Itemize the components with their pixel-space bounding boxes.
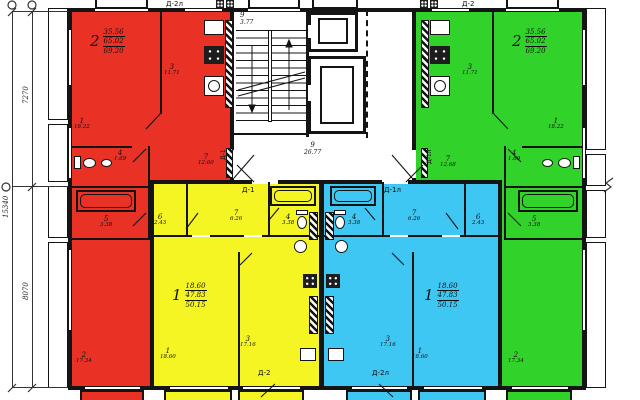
usable-area: 47.83 <box>437 290 459 300</box>
room-label: 317.16 <box>240 336 256 349</box>
shaft-dashed-wall <box>366 10 368 138</box>
rooms-count: 2 <box>512 34 522 49</box>
vent-shaft <box>421 20 429 108</box>
door-label-entry-left: Д-1 <box>242 186 254 194</box>
elevator-door-large <box>308 85 311 101</box>
balcony-left <box>48 186 68 238</box>
kitchen-box <box>300 348 316 361</box>
room-label: 41.69 <box>114 150 126 163</box>
fridge-icon <box>430 20 450 35</box>
room-label: 43.38 <box>282 214 294 227</box>
vent-shaft <box>309 212 318 240</box>
room-label: 76.26 <box>230 210 242 223</box>
room-label: 53.38 <box>528 216 540 229</box>
window-sill <box>346 390 412 400</box>
green-wall-h3 <box>504 238 586 240</box>
green-wall-h1 <box>522 146 586 148</box>
total-area: 69.20 <box>525 47 547 55</box>
room-label: 43.38 <box>348 214 360 227</box>
hall-label: 9 26.77 <box>304 142 321 156</box>
area-stack: 18.60 47.83 50.15 <box>185 282 207 309</box>
stove-icon <box>326 274 340 288</box>
toilet-tank <box>573 156 580 169</box>
room-label: 317.16 <box>380 336 396 349</box>
room-label: 53.38 <box>100 216 112 229</box>
living-area: 35.56 <box>525 28 547 36</box>
area-stack: 18.60 47.83 50.15 <box>437 282 459 309</box>
kitchen-sink-bowl <box>208 80 220 92</box>
toilet-icon <box>335 216 345 229</box>
window-sill <box>506 390 572 400</box>
door-gap-yellow-entry <box>252 180 278 184</box>
dim-label-8070: 8070 <box>22 282 30 300</box>
window-sill <box>164 390 232 400</box>
total-area: 69.20 <box>103 47 125 55</box>
elevator-car-small <box>318 18 348 44</box>
red-wall-h1 <box>68 146 132 148</box>
window-sill <box>418 390 486 400</box>
parapet-box <box>95 0 148 9</box>
dim-line-segment <box>32 12 33 388</box>
room-label: 62.43 <box>154 214 166 227</box>
bathtub-icon <box>518 190 578 212</box>
vent-box <box>420 0 428 8</box>
blue-door-gap2 <box>442 235 460 237</box>
door-label-green-entry: Д-1л <box>426 149 433 164</box>
room-label: 41.69 <box>508 150 520 163</box>
blue-door-gap1 <box>390 235 408 237</box>
vent-shaft <box>226 148 233 178</box>
door-label-entry-right: Д-1л <box>384 186 401 194</box>
stair-stringer <box>268 30 272 122</box>
window <box>68 128 72 178</box>
vent-shaft <box>225 20 233 108</box>
total-area: 50.15 <box>185 301 207 309</box>
window <box>185 8 222 12</box>
toilet-tank <box>74 156 81 169</box>
window-sill <box>238 390 304 400</box>
room-label: 217.34 <box>508 352 524 365</box>
red-kitchen-wall <box>160 8 162 114</box>
balcony-left <box>48 8 68 120</box>
living-area: 35.56 <box>103 28 125 36</box>
room-label: 118.22 <box>74 118 90 131</box>
room-label: 76.26 <box>408 210 420 223</box>
balcony-right <box>586 154 606 186</box>
usable-area: 47.83 <box>185 290 207 300</box>
toilet-tank <box>296 210 308 215</box>
green-wall-v1 <box>504 146 506 240</box>
yellow-wall-h1 <box>152 235 320 237</box>
area-stack: 35.56 65.02 69.20 <box>525 28 547 55</box>
yellow-rooms-wall <box>238 252 240 386</box>
room-label: 217.34 <box>76 352 92 365</box>
room-label: 311.71 <box>164 64 180 77</box>
bathtub-icon <box>270 186 316 206</box>
area-stack: 35.56 65.02 69.20 <box>103 28 125 55</box>
living-area: 18.60 <box>437 282 459 290</box>
window <box>68 250 72 330</box>
door-label-red-entry: Д-1 <box>220 149 227 160</box>
room-label: 712.60 <box>198 154 214 167</box>
vent-shaft <box>325 212 334 240</box>
vent-box <box>430 0 438 8</box>
washbasin-icon <box>335 240 348 253</box>
green-kitchen-wall <box>492 8 494 114</box>
vent-shaft <box>309 296 318 334</box>
room-label: 62.43 <box>472 214 484 227</box>
door-gap-green-entry <box>412 150 416 178</box>
parapet-box <box>248 0 300 9</box>
room-label: 118.60 <box>412 348 428 361</box>
bathtub-icon <box>76 190 136 212</box>
door-gap-blue-entry <box>382 180 408 184</box>
vent-shaft <box>325 296 334 334</box>
washbasin-icon <box>101 159 112 167</box>
washbasin-icon <box>542 159 553 167</box>
stove-icon <box>430 46 450 64</box>
door-label-bottom-right: Д-2л <box>372 369 389 377</box>
apartment-blue-label: 1 18.60 47.83 50.15 <box>424 282 459 309</box>
yellow-wall-v1 <box>186 182 188 237</box>
balcony-right <box>586 190 606 238</box>
apartment-green-label: 2 35.56 65.02 69.20 <box>512 28 547 55</box>
window <box>68 30 72 85</box>
balcony-left <box>48 242 68 388</box>
dim-label-7270: 7270 <box>22 86 30 104</box>
dim-ext-line <box>12 387 68 388</box>
green-wall-h2 <box>504 186 586 188</box>
fridge-icon <box>204 20 224 35</box>
dim-ext-line <box>12 11 68 12</box>
dim-label-15340: 15340 <box>2 196 10 218</box>
stove-icon <box>303 274 317 288</box>
dim-line-total <box>12 12 13 388</box>
door-label-top-right: Д-2 <box>462 0 474 8</box>
rooms-count: 1 <box>172 288 182 303</box>
elevator-car-large <box>320 66 354 124</box>
red-wall-h3 <box>68 238 150 240</box>
dim-ext-line <box>12 186 68 187</box>
center-wall <box>319 182 324 390</box>
bathtub-icon <box>330 186 376 206</box>
apartment-red-label: 2 35.56 65.02 69.20 <box>90 28 125 55</box>
elevator-door-small <box>308 25 311 38</box>
stair-landing-wall <box>234 133 309 135</box>
red-wall-h2 <box>68 186 150 188</box>
floor-plan: 7270 8070 15340 2 35.56 65.02 69.20 2 35… <box>0 0 640 400</box>
toilet-tank <box>334 210 346 215</box>
living-area: 18.60 <box>185 282 207 290</box>
yellow-door-gap2 <box>244 235 262 237</box>
room-label: 118.22 <box>548 118 564 131</box>
toilet-icon <box>297 216 307 229</box>
blue-green-wall <box>498 182 502 390</box>
door-label-top-left: Д-2л <box>166 0 183 8</box>
kitchen-sink-bowl <box>434 80 446 92</box>
washbasin-icon <box>294 240 307 253</box>
room-label: 311.71 <box>462 64 478 77</box>
window <box>432 8 469 12</box>
blue-rooms-wall <box>412 252 414 386</box>
window-sill <box>80 390 144 400</box>
blue-wall-h1 <box>320 235 500 237</box>
parapet-box <box>506 0 559 9</box>
vent-box <box>216 0 224 8</box>
elevator-machine-box <box>312 0 358 9</box>
stair-label: 9 3.77 <box>240 12 253 26</box>
apartment-yellow-label: 1 18.60 47.83 50.15 <box>172 282 207 309</box>
balcony-left <box>48 124 68 182</box>
rooms-count: 1 <box>424 288 434 303</box>
blue-wall-v1 <box>464 182 466 237</box>
usable-area: 65.02 <box>103 36 125 46</box>
vent-box <box>226 0 234 8</box>
door-label-bottom-left: Д-2 <box>258 369 270 377</box>
room-label: 118.60 <box>160 348 176 361</box>
toilet-icon <box>558 158 571 168</box>
red-wall-v1 <box>148 146 150 240</box>
toilet-icon <box>83 158 96 168</box>
yellow-door-gap1 <box>192 235 210 237</box>
stove-icon <box>204 46 224 64</box>
total-area: 50.15 <box>437 301 459 309</box>
kitchen-box <box>328 348 344 361</box>
room-label: 712.68 <box>440 156 456 169</box>
balcony-right <box>586 242 606 388</box>
usable-area: 65.02 <box>525 36 547 46</box>
rooms-count: 2 <box>90 34 100 49</box>
mid-wall <box>150 180 502 184</box>
balcony-right <box>586 8 606 150</box>
